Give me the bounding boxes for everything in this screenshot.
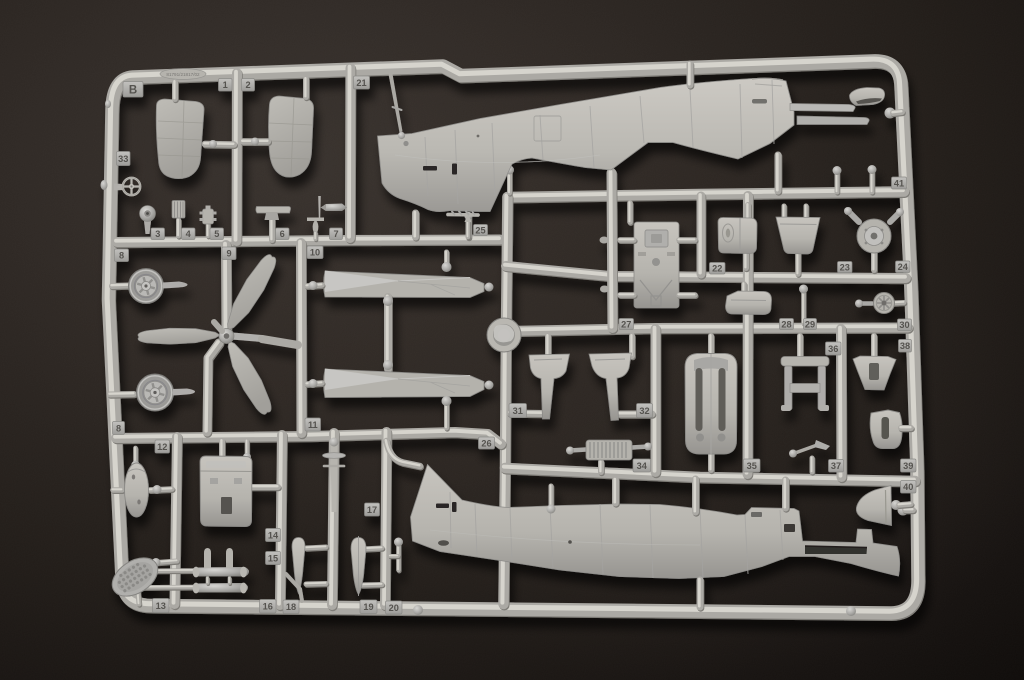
svg-text:1: 1 [223,80,228,90]
svg-text:11: 11 [308,420,318,430]
svg-text:29: 29 [805,319,815,329]
svg-text:39: 39 [903,461,913,471]
svg-text:21: 21 [356,78,366,88]
svg-text:17: 17 [367,505,377,515]
svg-text:14: 14 [268,530,279,540]
svg-text:30: 30 [899,320,909,330]
svg-text:2: 2 [245,80,250,90]
svg-text:10: 10 [310,248,320,258]
svg-text:4: 4 [186,229,192,239]
svg-text:41: 41 [894,178,904,188]
svg-text:8: 8 [119,251,124,261]
svg-text:32: 32 [639,406,649,416]
svg-text:31: 31 [513,406,523,416]
svg-text:26: 26 [481,438,491,448]
svg-text:20: 20 [389,603,399,613]
svg-text:37: 37 [831,461,841,471]
svg-text:18: 18 [286,602,296,612]
svg-text:38: 38 [900,341,910,351]
svg-text:34: 34 [637,461,648,471]
svg-text:12: 12 [157,442,167,452]
svg-text:7: 7 [333,229,338,239]
svg-text:33: 33 [118,154,128,164]
svg-text:B: B [129,84,137,96]
svg-text:6: 6 [280,229,285,239]
svg-text:25: 25 [475,225,485,235]
svg-text:3: 3 [155,229,160,239]
svg-text:9: 9 [226,249,231,259]
svg-text:16: 16 [263,602,273,612]
svg-text:5: 5 [214,229,219,239]
svg-text:28: 28 [781,319,791,329]
svg-text:19: 19 [363,602,373,612]
svg-text:36: 36 [828,344,838,354]
svg-text:35: 35 [747,461,757,471]
svg-text:23: 23 [840,262,850,272]
svg-text:27: 27 [621,319,631,329]
svg-text:40: 40 [903,482,913,492]
svg-text:13: 13 [156,601,166,611]
svg-text:15: 15 [268,553,278,563]
svg-text:81791/21817/02: 81791/21817/02 [166,72,200,77]
svg-text:22: 22 [712,264,722,274]
svg-text:24: 24 [898,262,909,272]
svg-text:8: 8 [116,423,121,433]
